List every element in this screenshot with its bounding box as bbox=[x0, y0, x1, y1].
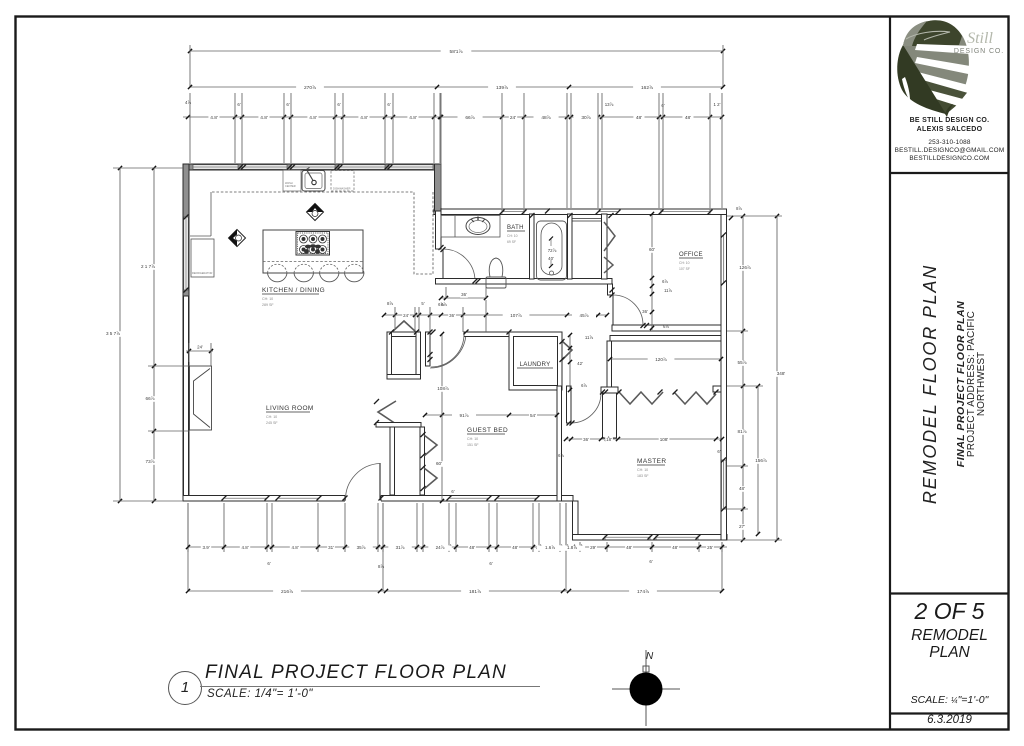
svg-text:73⅞: 73⅞ bbox=[146, 459, 155, 464]
svg-text:CH: 10: CH: 10 bbox=[507, 234, 518, 238]
svg-text:174⅞: 174⅞ bbox=[637, 589, 650, 595]
svg-text:42': 42' bbox=[577, 361, 583, 366]
svg-text:107⅞: 107⅞ bbox=[510, 313, 522, 318]
svg-text:DESIGN CO.: DESIGN CO. bbox=[954, 48, 1004, 55]
svg-text:48': 48' bbox=[685, 115, 691, 121]
svg-text:183 SF: 183 SF bbox=[637, 474, 649, 478]
svg-text:6': 6' bbox=[717, 449, 720, 454]
svg-text:Still: Still bbox=[967, 30, 993, 47]
svg-text:CH: 10: CH: 10 bbox=[679, 261, 690, 265]
svg-text:6⅞: 6⅞ bbox=[581, 383, 587, 388]
svg-text:6': 6' bbox=[649, 559, 652, 564]
svg-text:348': 348' bbox=[777, 371, 786, 376]
svg-text:36': 36' bbox=[461, 292, 467, 297]
svg-text:8⅞: 8⅞ bbox=[387, 301, 393, 306]
svg-text:48': 48' bbox=[636, 115, 642, 121]
svg-text:11⅞: 11⅞ bbox=[664, 288, 672, 293]
svg-text:108⅞: 108⅞ bbox=[437, 386, 449, 391]
svg-text:24': 24' bbox=[510, 115, 516, 121]
svg-text:REFRIGERATOR: REFRIGERATOR bbox=[192, 271, 212, 275]
svg-text:120⅞: 120⅞ bbox=[655, 357, 667, 362]
svg-text:60': 60' bbox=[436, 461, 442, 466]
svg-text:6': 6' bbox=[237, 102, 240, 107]
svg-text:8⅞: 8⅞ bbox=[378, 564, 384, 569]
svg-text:KITCHEN / DINING: KITCHEN / DINING bbox=[262, 287, 325, 294]
svg-text:1.6⅞: 1.6⅞ bbox=[545, 545, 555, 550]
svg-text:LAUNDRY: LAUNDRY bbox=[520, 361, 551, 368]
svg-text:8⅞: 8⅞ bbox=[736, 206, 742, 211]
svg-text:156⅞: 156⅞ bbox=[755, 458, 767, 463]
svg-text:18': 18' bbox=[606, 437, 612, 442]
svg-text:31': 31' bbox=[328, 545, 334, 550]
svg-text:1 2': 1 2' bbox=[714, 102, 721, 107]
svg-text:24': 24' bbox=[197, 345, 203, 350]
svg-text:72⅞: 72⅞ bbox=[548, 248, 557, 253]
svg-text:25': 25' bbox=[707, 545, 713, 550]
svg-text:DISHWASHER: DISHWASHER bbox=[333, 187, 351, 191]
svg-text:36': 36' bbox=[449, 313, 455, 318]
svg-text:24': 24' bbox=[403, 313, 409, 318]
svg-text:CH: 10: CH: 10 bbox=[467, 437, 478, 441]
svg-text:4.8': 4.8' bbox=[260, 115, 268, 121]
svg-text:48': 48' bbox=[739, 486, 745, 491]
svg-text:108': 108' bbox=[660, 437, 669, 442]
svg-text:66⅞: 66⅞ bbox=[146, 396, 155, 401]
svg-text:6⅞: 6⅞ bbox=[663, 324, 669, 329]
svg-text:3 5 7⅞: 3 5 7⅞ bbox=[106, 331, 120, 336]
svg-text:CH: 10: CH: 10 bbox=[262, 297, 273, 301]
svg-text:6': 6' bbox=[451, 489, 454, 494]
svg-text:139⅞: 139⅞ bbox=[496, 85, 509, 91]
svg-text:6': 6' bbox=[489, 561, 492, 566]
svg-text:6': 6' bbox=[387, 102, 390, 107]
svg-text:48': 48' bbox=[626, 545, 632, 550]
svg-text:6': 6' bbox=[337, 102, 340, 107]
svg-text:1.8⅞: 1.8⅞ bbox=[567, 545, 577, 550]
svg-text:6⅞: 6⅞ bbox=[438, 302, 444, 307]
svg-text:31⅞: 31⅞ bbox=[396, 545, 405, 550]
svg-text:45⅞: 45⅞ bbox=[580, 313, 589, 318]
svg-text:3.9': 3.9' bbox=[202, 545, 209, 550]
svg-text:2 1 7⅞: 2 1 7⅞ bbox=[141, 264, 155, 269]
svg-text:48': 48' bbox=[512, 545, 518, 550]
svg-text:162⅞: 162⅞ bbox=[641, 85, 654, 91]
svg-text:48': 48' bbox=[469, 545, 475, 550]
svg-text:270⅞: 270⅞ bbox=[304, 85, 317, 91]
svg-text:4.8': 4.8' bbox=[309, 115, 317, 121]
svg-text:181⅞: 181⅞ bbox=[469, 589, 482, 595]
svg-text:58'1⅞: 58'1⅞ bbox=[450, 49, 464, 55]
svg-text:289 SF: 289 SF bbox=[262, 303, 274, 307]
svg-text:6⅞: 6⅞ bbox=[662, 279, 668, 284]
svg-text:48⅞: 48⅞ bbox=[541, 115, 551, 121]
svg-text:4.8': 4.8' bbox=[291, 545, 298, 550]
svg-text:91⅞: 91⅞ bbox=[460, 413, 469, 418]
svg-text:24⅞: 24⅞ bbox=[436, 545, 445, 550]
svg-text:48': 48' bbox=[672, 545, 678, 550]
svg-text:40': 40' bbox=[548, 256, 554, 261]
svg-text:4.8': 4.8' bbox=[241, 545, 248, 550]
svg-text:5': 5' bbox=[421, 301, 424, 306]
svg-text:LIVING ROOM: LIVING ROOM bbox=[266, 405, 314, 412]
svg-text:151 SF: 151 SF bbox=[467, 443, 479, 447]
svg-text:MASTER: MASTER bbox=[637, 458, 667, 465]
svg-text:216⅞: 216⅞ bbox=[281, 589, 294, 595]
svg-text:69 SF: 69 SF bbox=[507, 240, 516, 244]
svg-text:36': 36' bbox=[583, 437, 589, 442]
svg-text:N: N bbox=[646, 651, 654, 662]
svg-text:35⅞: 35⅞ bbox=[357, 545, 366, 550]
svg-text:6': 6' bbox=[286, 102, 289, 107]
svg-text:27': 27' bbox=[739, 524, 745, 529]
svg-text:245 SF: 245 SF bbox=[266, 421, 278, 425]
svg-text:36': 36' bbox=[642, 309, 648, 314]
svg-text:4.8': 4.8' bbox=[210, 115, 218, 121]
svg-text:54': 54' bbox=[530, 413, 536, 418]
svg-text:126⅞: 126⅞ bbox=[739, 265, 751, 270]
svg-text:6': 6' bbox=[267, 561, 270, 566]
svg-text:4.8': 4.8' bbox=[409, 115, 417, 121]
svg-text:13⅞: 13⅞ bbox=[605, 102, 614, 107]
svg-text:107 SF: 107 SF bbox=[679, 267, 690, 271]
svg-text:81⅞: 81⅞ bbox=[738, 429, 747, 434]
svg-text:30⅞: 30⅞ bbox=[581, 115, 591, 121]
svg-text:OFFICE: OFFICE bbox=[679, 252, 703, 258]
svg-text:GUEST BED: GUEST BED bbox=[467, 427, 508, 434]
svg-text:BATH: BATH bbox=[507, 225, 524, 231]
svg-text:55⅞: 55⅞ bbox=[738, 360, 747, 365]
svg-text:CH: 10: CH: 10 bbox=[637, 468, 648, 472]
svg-text:66⅞: 66⅞ bbox=[465, 115, 475, 121]
svg-text:CENTER: CENTER bbox=[285, 184, 296, 188]
svg-text:60': 60' bbox=[649, 247, 655, 252]
svg-text:29': 29' bbox=[590, 545, 596, 550]
svg-text:CH: 10: CH: 10 bbox=[266, 415, 277, 419]
svg-text:11⅞: 11⅞ bbox=[585, 335, 594, 340]
svg-text:4.8': 4.8' bbox=[360, 115, 368, 121]
svg-text:6⅞: 6⅞ bbox=[558, 453, 564, 458]
